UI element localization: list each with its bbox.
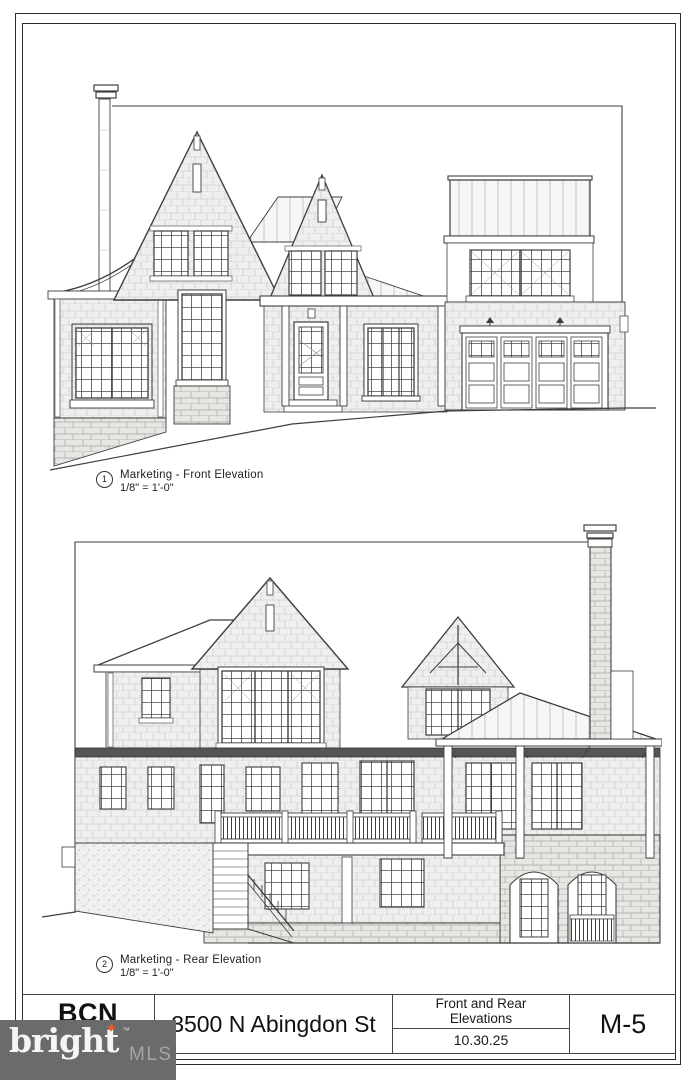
bright-spark-icon: ✦ (104, 1018, 119, 1038)
rear-elevation-drawing (42, 523, 662, 953)
sheet-date: 10.30.25 (393, 1029, 569, 1048)
bright-mls-watermark: bright ✦ ™ MLS (0, 1020, 176, 1080)
bright-logo-text: bright (9, 1021, 118, 1060)
rear-elevation-label: 2 Marketing - Rear Elevation 1/8" = 1'-0… (96, 954, 261, 979)
sheet-number: M-5 (569, 995, 676, 1053)
drawing-number-bubble: 1 (96, 471, 113, 488)
trademark-symbol: ™ (122, 1026, 130, 1035)
front-elevation-label: 1 Marketing - Front Elevation 1/8" = 1'-… (96, 469, 263, 494)
sheet-title-line1: Front and Rear (393, 996, 569, 1011)
drawing-number-bubble: 2 (96, 956, 113, 973)
drawing-title: Marketing - Rear Elevation (120, 954, 261, 966)
sheet-title-line2: Elevations (393, 1011, 569, 1026)
sheet-title: Front and Rear Elevations (393, 995, 569, 1029)
drawing-scale: 1/8" = 1'-0" (120, 967, 261, 979)
drawing-scale: 1/8" = 1'-0" (120, 482, 263, 494)
front-elevation-drawing (42, 80, 662, 478)
mls-logo-text: MLS (129, 1044, 173, 1066)
drawing-sheet: 1 Marketing - Front Elevation 1/8" = 1'-… (0, 0, 699, 1080)
sheet-title-cell: Front and Rear Elevations 10.30.25 (392, 995, 569, 1053)
project-address: 3500 N Abingdon St (154, 995, 392, 1053)
drawing-title: Marketing - Front Elevation (120, 469, 263, 481)
